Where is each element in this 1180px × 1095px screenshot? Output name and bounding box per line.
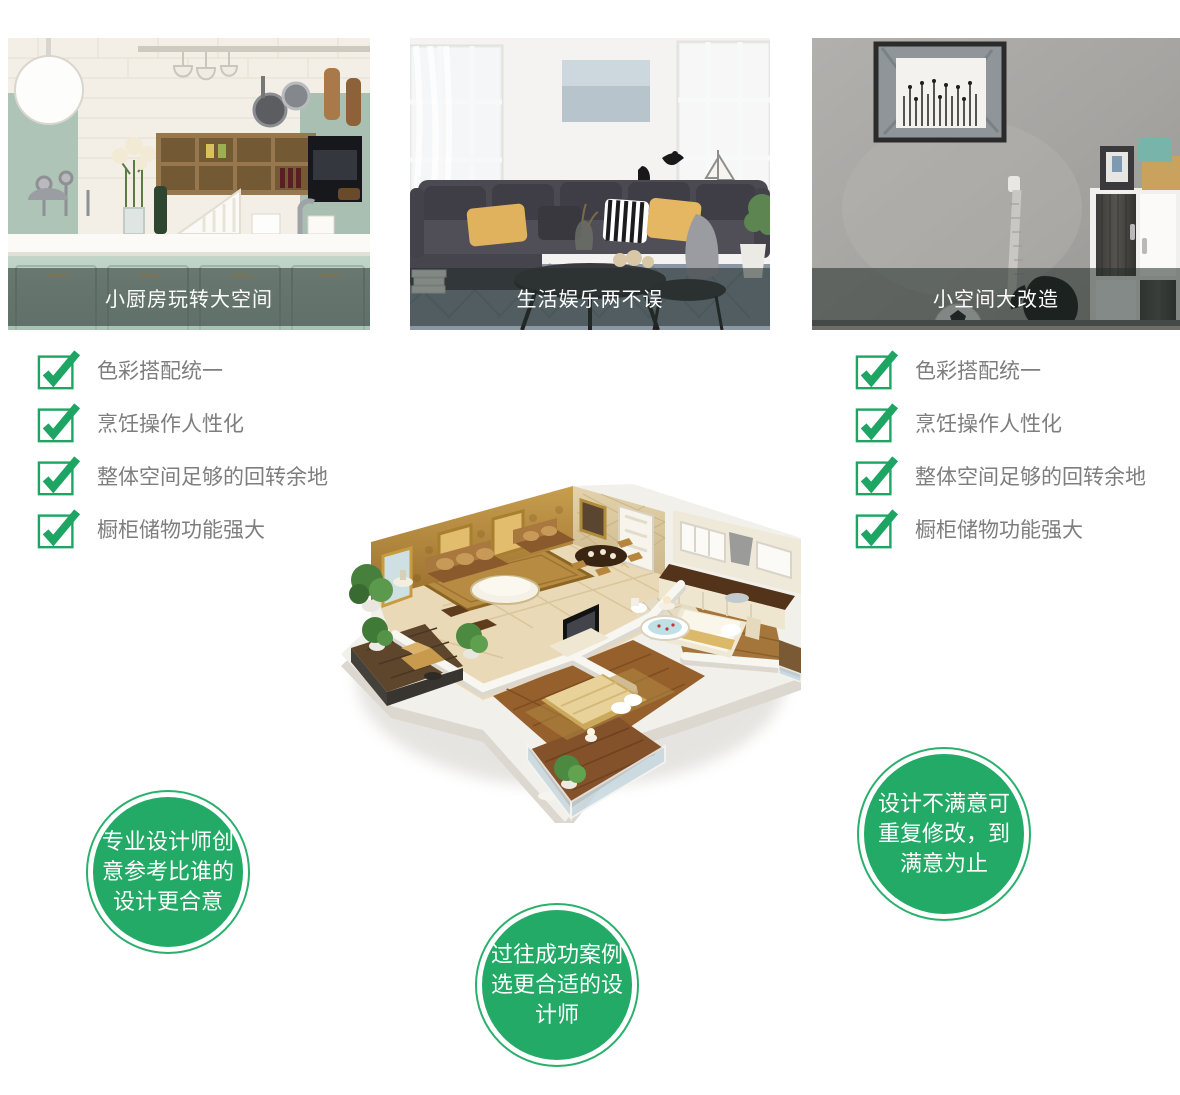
badge-text-line: 选更合适的设 [491, 970, 623, 1000]
checkmark-icon [37, 455, 81, 497]
showcase-card-kitchen[interactable]: 小厨房玩转大空间 [8, 38, 370, 330]
checklist-item: 烹饪操作人性化 [37, 403, 367, 443]
floorplan-3d-render [333, 478, 803, 823]
promo-page: 小厨房玩转大空间 [0, 0, 1180, 1095]
checkmark-icon [855, 455, 899, 497]
badge-designer-ideas: 专业设计师创 意参考比谁的 设计更合意 [86, 790, 250, 954]
checklist-item-label: 色彩搭配统一 [915, 355, 1041, 385]
showcase-card-space[interactable]: 小空间大改造 [812, 38, 1180, 330]
checklist-item-label: 橱柜储物功能强大 [97, 514, 265, 544]
checklist-item: 橱柜储物功能强大 [37, 509, 367, 549]
card-caption: 生活娱乐两不误 [410, 268, 770, 326]
checkmark-icon [37, 508, 81, 550]
badge-circle: 过往成功案例 选更合适的设 计师 [482, 910, 632, 1060]
checklist-item: 整体空间足够的回转余地 [37, 456, 367, 496]
badge-text-line: 计师 [535, 1000, 579, 1030]
checklist-item-label: 色彩搭配统一 [97, 355, 223, 385]
checklist-item-label: 烹饪操作人性化 [915, 408, 1062, 438]
badge-circle: 专业设计师创 意参考比谁的 设计更合意 [93, 797, 243, 947]
checklist-item: 橱柜储物功能强大 [855, 509, 1180, 549]
badge-text-line: 满意为止 [900, 849, 988, 879]
checkmark-icon [37, 349, 81, 391]
showcase-card-living[interactable]: 生活娱乐两不误 [410, 38, 770, 330]
checklist-item-label: 整体空间足够的回转余地 [97, 461, 328, 491]
checklist-item-label: 烹饪操作人性化 [97, 408, 244, 438]
kitchen-feature-checklist: 色彩搭配统一 烹饪操作人性化 整体空间足够的回转余地 橱柜储物功能强大 [37, 350, 367, 562]
badge-text-line: 专业设计师创 [102, 827, 234, 857]
card-caption: 小空间大改造 [812, 268, 1180, 326]
checklist-item: 整体空间足够的回转余地 [855, 456, 1180, 496]
checkmark-icon [37, 402, 81, 444]
badge-text-line: 意参考比谁的 [102, 857, 234, 887]
badge-text-line: 设计不满意可 [878, 789, 1010, 819]
badge-text-line: 重复修改，到 [878, 819, 1010, 849]
checklist-item: 色彩搭配统一 [37, 350, 367, 390]
checklist-item-label: 橱柜储物功能强大 [915, 514, 1083, 544]
checkmark-icon [855, 508, 899, 550]
checklist-item: 烹饪操作人性化 [855, 403, 1180, 443]
space-feature-checklist: 色彩搭配统一 烹饪操作人性化 整体空间足够的回转余地 橱柜储物功能强大 [855, 350, 1180, 562]
checkmark-icon [855, 349, 899, 391]
checklist-item: 色彩搭配统一 [855, 350, 1180, 390]
badge-circle: 设计不满意可 重复修改，到 满意为止 [864, 754, 1024, 914]
checklist-item-label: 整体空间足够的回转余地 [915, 461, 1146, 491]
badge-unlimited-revisions: 设计不满意可 重复修改，到 满意为止 [857, 747, 1031, 921]
badge-success-cases: 过往成功案例 选更合适的设 计师 [475, 903, 639, 1067]
badge-text-line: 设计更合意 [113, 887, 223, 917]
card-caption: 小厨房玩转大空间 [8, 268, 370, 326]
badge-text-line: 过往成功案例 [491, 940, 623, 970]
checkmark-icon [855, 402, 899, 444]
